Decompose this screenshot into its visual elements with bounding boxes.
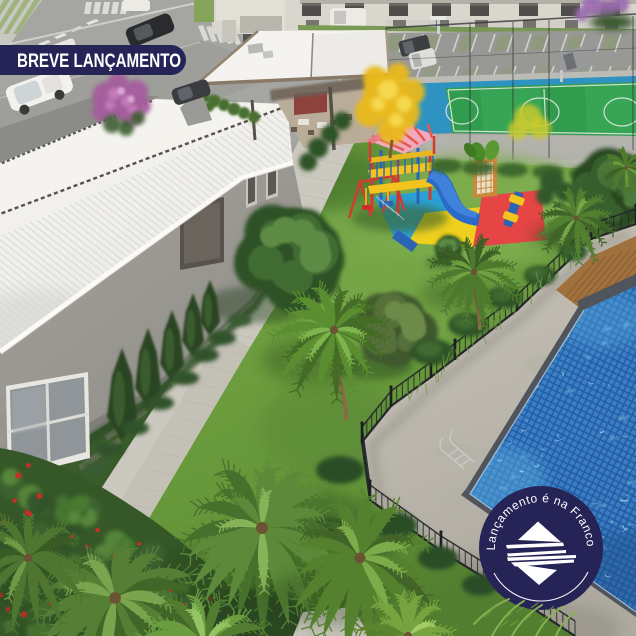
svg-text:BREVE LANÇAMENTO: BREVE LANÇAMENTO [17, 50, 181, 72]
